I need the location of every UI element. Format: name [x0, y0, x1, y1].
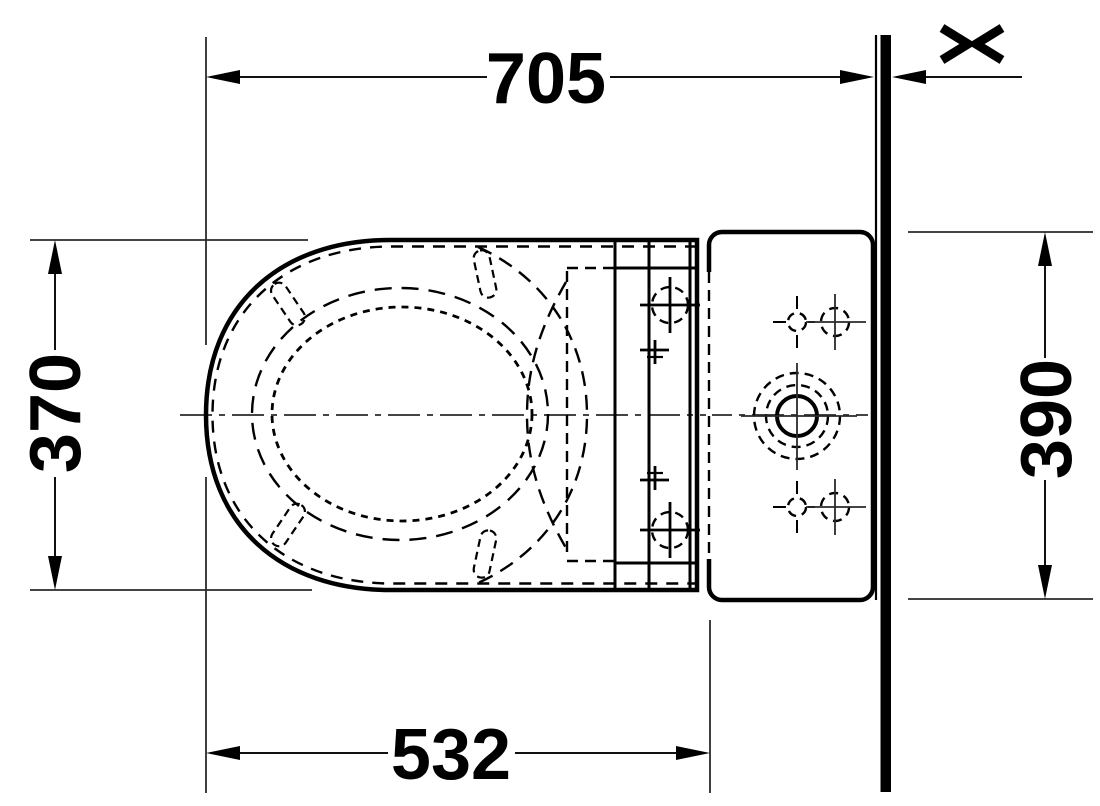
- dimension-right-390: 390: [1007, 232, 1087, 599]
- arrowhead-up-icon: [1038, 232, 1052, 266]
- dimension-value-bottom: 532: [391, 715, 511, 795]
- tank-hole-top-right: [806, 294, 866, 350]
- dimension-left-370: 370: [16, 240, 96, 590]
- arrowhead-left-icon: [206, 70, 240, 84]
- arrowhead-down-icon: [1038, 565, 1052, 599]
- seat-bumper-lower-left: [268, 501, 308, 550]
- arrowhead-left-icon: [206, 746, 240, 760]
- dimension-value-left: 370: [16, 353, 96, 473]
- wall-section-line: [881, 35, 892, 792]
- seat-hinge-plate: [567, 240, 700, 588]
- dimension-top-705: 705: [206, 39, 1022, 119]
- position-mark-bottom: [640, 466, 669, 490]
- flush-valve-hole: [741, 363, 857, 470]
- tank-hole-bottom-right: [806, 479, 866, 535]
- bowl-opening-hidden-line: [272, 307, 532, 521]
- wall-break-icon: [942, 28, 1002, 60]
- arrowhead-down-icon: [48, 556, 62, 590]
- cistern-tank: [709, 232, 873, 600]
- seat-ring-hidden-line: [252, 288, 548, 540]
- position-mark-top: [640, 340, 669, 364]
- seat-bumper-lower-right: [472, 529, 498, 579]
- dimension-value-top: 705: [486, 39, 606, 119]
- arrowhead-right-icon: [676, 746, 710, 760]
- counter-arrowhead-icon: [892, 70, 926, 84]
- technical-drawing: 705 370 390 532: [0, 0, 1100, 806]
- seat-bumper-upper-right: [472, 249, 498, 299]
- drawing-page: 705 370 390 532: [0, 0, 1100, 806]
- wall: [876, 28, 1002, 792]
- arrowhead-right-icon: [840, 70, 874, 84]
- dimension-value-right: 390: [1007, 359, 1087, 479]
- arrowhead-up-icon: [48, 240, 62, 274]
- dimension-bottom-532: 532: [206, 715, 710, 795]
- seat-bumper-upper-left: [268, 280, 308, 329]
